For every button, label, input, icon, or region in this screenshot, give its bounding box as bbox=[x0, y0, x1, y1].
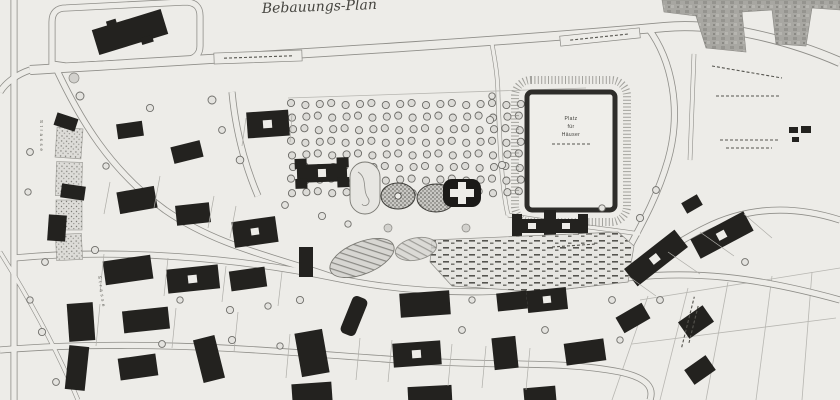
site-plan-map: Platz für Häuser bbox=[0, 0, 840, 400]
cross-horizontal bbox=[450, 189, 474, 197]
street-label-left: Strasse bbox=[39, 120, 44, 153]
church-with-cross bbox=[443, 179, 481, 207]
pond-west-island bbox=[395, 193, 401, 199]
square-border bbox=[527, 92, 615, 210]
allotment-gardens bbox=[430, 232, 634, 292]
site-plan-scan: Platz für Häuser bbox=[0, 0, 840, 400]
square-label-2: für bbox=[567, 124, 574, 130]
square-label-1: Platz bbox=[564, 116, 577, 122]
square-label-3: Häuser bbox=[562, 132, 581, 138]
public-square: Platz für Häuser bbox=[515, 80, 627, 222]
